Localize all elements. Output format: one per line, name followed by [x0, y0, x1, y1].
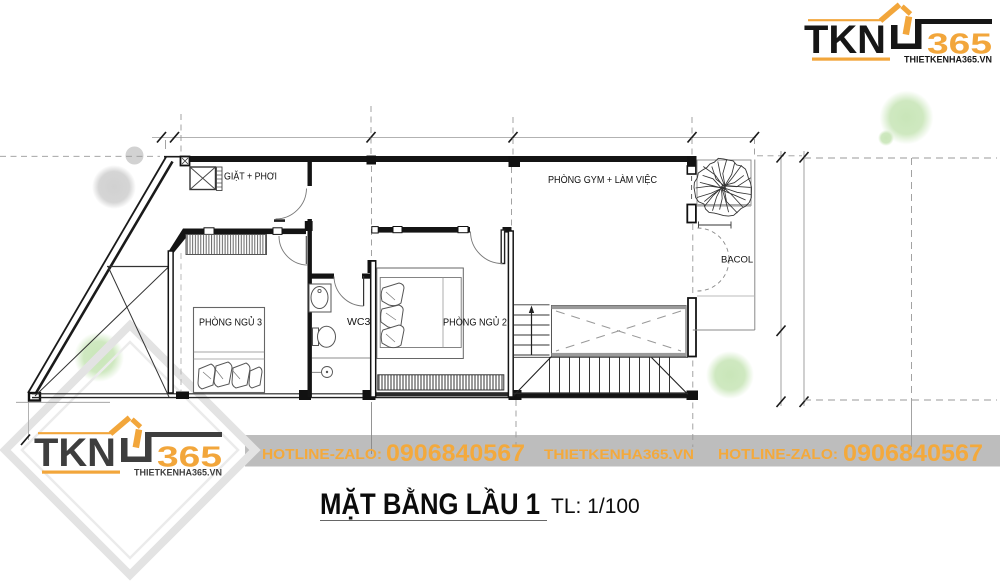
svg-text:TL: 1/100: TL: 1/100: [551, 495, 640, 518]
svg-text:0906840567: 0906840567: [386, 440, 525, 467]
svg-text:BACOL: BACOL: [721, 255, 753, 266]
svg-text:PHÒNG NGỦ 3: PHÒNG NGỦ 3: [199, 316, 262, 329]
svg-text:MẶT BẰNG LẦU 1: MẶT BẰNG LẦU 1: [320, 487, 540, 521]
svg-text:PHÒNG GYM + LÀM VIỆC: PHÒNG GYM + LÀM VIỆC: [548, 173, 657, 186]
svg-text:WC3: WC3: [347, 316, 370, 328]
svg-text:0906840567: 0906840567: [843, 440, 983, 467]
svg-text:HOTLINE-ZALO:: HOTLINE-ZALO:: [262, 447, 382, 463]
svg-text:THIETKENHA365.VN: THIETKENHA365.VN: [544, 447, 694, 462]
svg-text:HOTLINE-ZALO:: HOTLINE-ZALO:: [718, 447, 838, 463]
svg-text:PHÒNG NGỦ 2: PHÒNG NGỦ 2: [443, 316, 507, 329]
svg-text:GIẶT + PHƠI: GIẶT + PHƠI: [224, 170, 277, 183]
